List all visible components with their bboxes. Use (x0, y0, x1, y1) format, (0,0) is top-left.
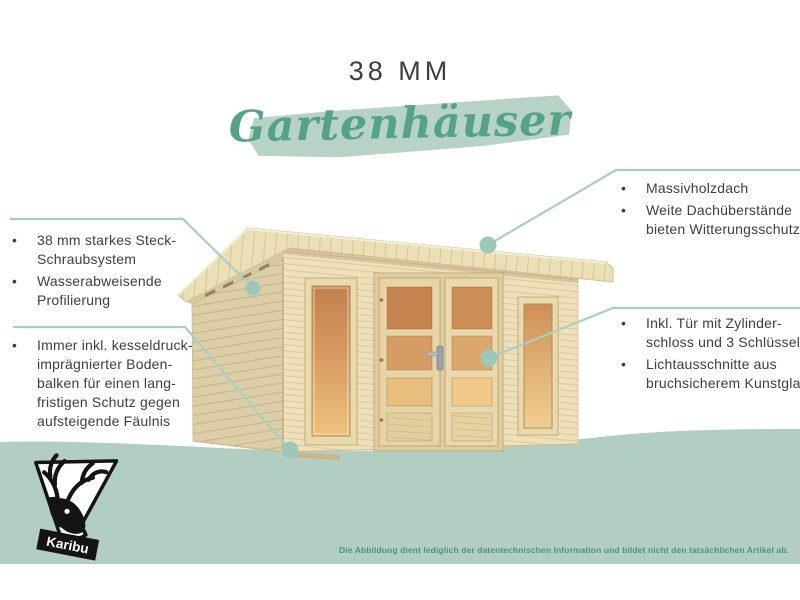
connector-dot-floor-beams (282, 442, 299, 459)
size-label: 38 MM (0, 56, 800, 87)
connector-dot-door (481, 350, 498, 367)
feature-line: Schraubsystem (37, 250, 176, 269)
bullet-marker: • (621, 179, 646, 198)
feature-line: bieten Witterungsschutz (646, 220, 800, 239)
bullet-marker: • (12, 231, 37, 269)
feature-item: • 38 mm starkes Steck- Schraubsystem (12, 231, 202, 269)
callout-left-bottom: • Immer inkl. kesseldruck- imprägnierter… (12, 336, 212, 434)
feature-line: aufsteigende Fäulnis (37, 412, 193, 431)
right-window (518, 297, 558, 435)
feature-line: fristigen Schutz gegen (37, 393, 193, 412)
callout-left-top: • 38 mm starkes Steck- Schraubsystem • W… (12, 231, 202, 313)
feature-line: balken für einen lang- (37, 374, 193, 393)
left-window (305, 278, 357, 445)
connector-dot-roof (480, 237, 497, 254)
feature-line: imprägnierter Boden- (37, 355, 193, 374)
feature-line: Massivholzdach (646, 179, 748, 198)
callout-right-bottom: • Inkl. Tür mit Zylinder- schloss und 3 … (621, 314, 800, 396)
feature-item: • Wasserabweisende Profilierung (12, 272, 202, 310)
feature-line: Lichtausschnitte aus (646, 355, 800, 374)
feature-line: Wasserabweisende (37, 272, 162, 291)
feature-item: • Lichtausschnitte aus bruchsicherem Kun… (621, 355, 800, 393)
bullet-marker: • (621, 355, 646, 393)
feature-line: 38 mm starkes Steck- (37, 231, 176, 250)
infographic-page: Karibu 38 MM Gartenhäuser • 38 mm starke… (0, 0, 800, 600)
door-hinge (380, 358, 384, 362)
feature-line: Weite Dachüberstände (646, 201, 800, 220)
door-leaf-left (379, 278, 440, 446)
connector-dot-screw-system (246, 281, 261, 296)
callout-right-top: • Massivholzdach • Weite Dachüberstände … (621, 179, 800, 242)
garden-house-illustration (178, 228, 613, 460)
disclaimer-text: Die Abbildung dient lediglich der datent… (339, 545, 789, 555)
feature-item: • Inkl. Tür mit Zylinder- schloss und 3 … (621, 314, 800, 352)
bullet-marker: • (12, 272, 37, 310)
feature-line: bruchsicherem Kunstglas (646, 374, 800, 393)
door-hinge (380, 418, 384, 422)
feature-item: • Massivholzdach (621, 179, 800, 198)
bullet-marker: • (12, 336, 37, 431)
feature-line: Profilierung (37, 291, 162, 310)
bullet-marker: • (621, 201, 646, 239)
feature-item: • Weite Dachüberstände bieten Witterungs… (621, 201, 800, 239)
feature-item: • Immer inkl. kesseldruck- imprägnierter… (12, 336, 212, 431)
feature-line: Immer inkl. kesseldruck- (37, 336, 193, 355)
bullet-marker: • (621, 314, 646, 352)
feature-line: Inkl. Tür mit Zylinder- (646, 314, 800, 333)
door-hinge (380, 298, 384, 302)
feature-line: schloss und 3 Schlüsseln (646, 333, 800, 352)
